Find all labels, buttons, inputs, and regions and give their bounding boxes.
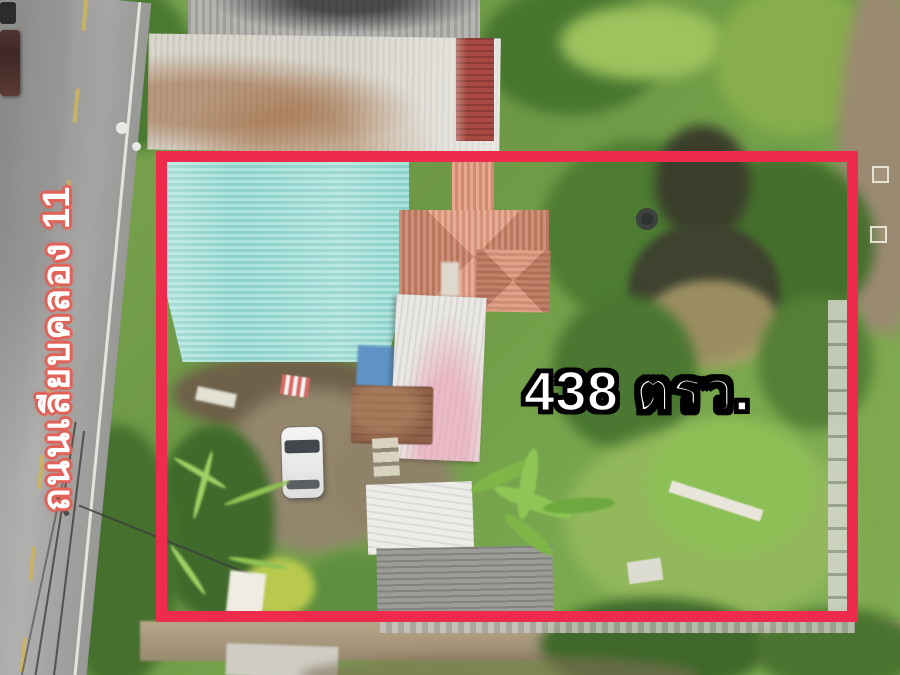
parked-vehicle xyxy=(0,2,16,24)
road-name-label: ถนนเลียบคลอง 11 xyxy=(33,148,81,548)
metal-roof-rusty-white xyxy=(147,34,501,155)
patio-table xyxy=(116,122,128,134)
survey-marker xyxy=(872,166,889,183)
patio-table xyxy=(132,142,141,151)
aerial-photo: ถนนเลียบคลอง 11 438 ตรว. xyxy=(0,0,900,675)
property-boundary-rectangle xyxy=(156,151,858,622)
survey-marker xyxy=(870,226,887,243)
parked-pickup-truck xyxy=(0,30,20,96)
grass-patch xyxy=(560,5,725,80)
land-area-label: 438 ตรว. xyxy=(524,348,750,435)
metal-roof-red xyxy=(456,38,494,141)
